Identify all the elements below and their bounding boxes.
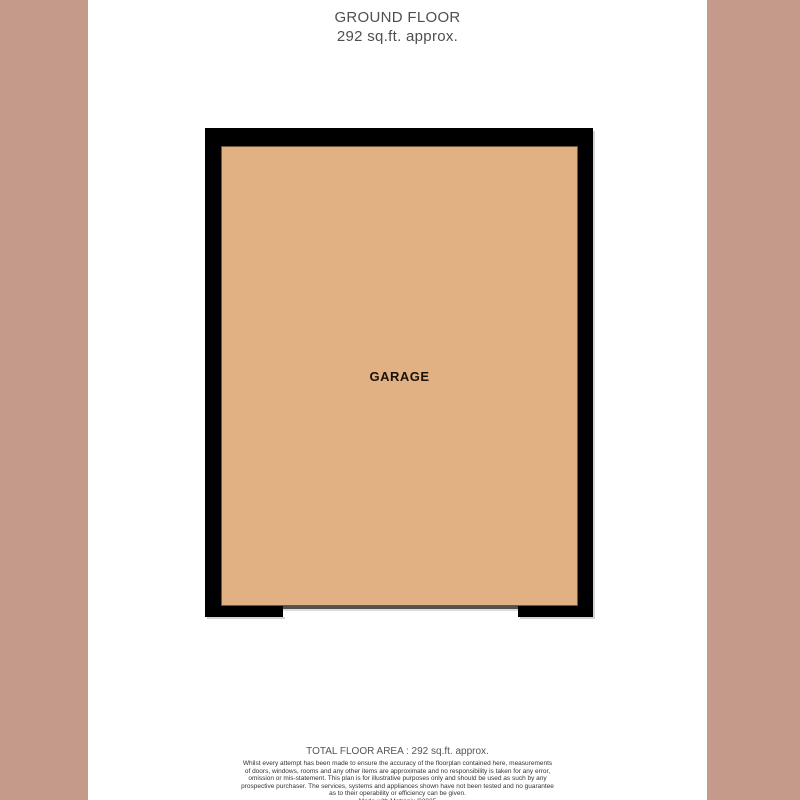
plan-shadow-bottom-left: [207, 617, 285, 619]
room-label-garage: GARAGE: [369, 369, 429, 384]
right-side-panel: [707, 0, 800, 800]
total-floor-area-text: TOTAL FLOOR AREA : 292 sq.ft. approx.: [88, 746, 707, 758]
disclaimer-line: of doors, windows, rooms and any other i…: [88, 768, 707, 776]
floor-title: GROUND FLOOR: [88, 8, 707, 27]
floor-area-subtitle: 292 sq.ft. approx.: [88, 27, 707, 46]
plan-shadow-right: [593, 131, 595, 619]
plan-shadow-bottom-right: [520, 617, 595, 619]
wall-bottom-left-segment: [205, 606, 283, 617]
wall-top: [205, 128, 593, 146]
floor-header: GROUND FLOOR 292 sq.ft. approx.: [88, 8, 707, 46]
floorplan-drawing: GARAGE: [205, 128, 593, 617]
garage-room-floor: GARAGE: [221, 146, 578, 606]
plan-footer: TOTAL FLOOR AREA : 292 sq.ft. approx. Wh…: [88, 746, 707, 800]
disclaimer-line: as to their operability or efficiency ca…: [88, 790, 707, 798]
left-side-panel: [0, 0, 88, 800]
wall-left: [205, 128, 221, 617]
disclaimer-line: prospective purchaser. The services, sys…: [88, 783, 707, 791]
disclaimer-line: omission or mis-statement. This plan is …: [88, 775, 707, 783]
floorplan-page: GROUND FLOOR 292 sq.ft. approx. GARAGE T…: [0, 0, 800, 800]
disclaimer-line: Whilst every attempt has been made to en…: [88, 760, 707, 768]
wall-bottom-right-segment: [518, 606, 593, 617]
wall-right: [578, 128, 593, 617]
garage-door-opening-shadow: [283, 609, 518, 611]
